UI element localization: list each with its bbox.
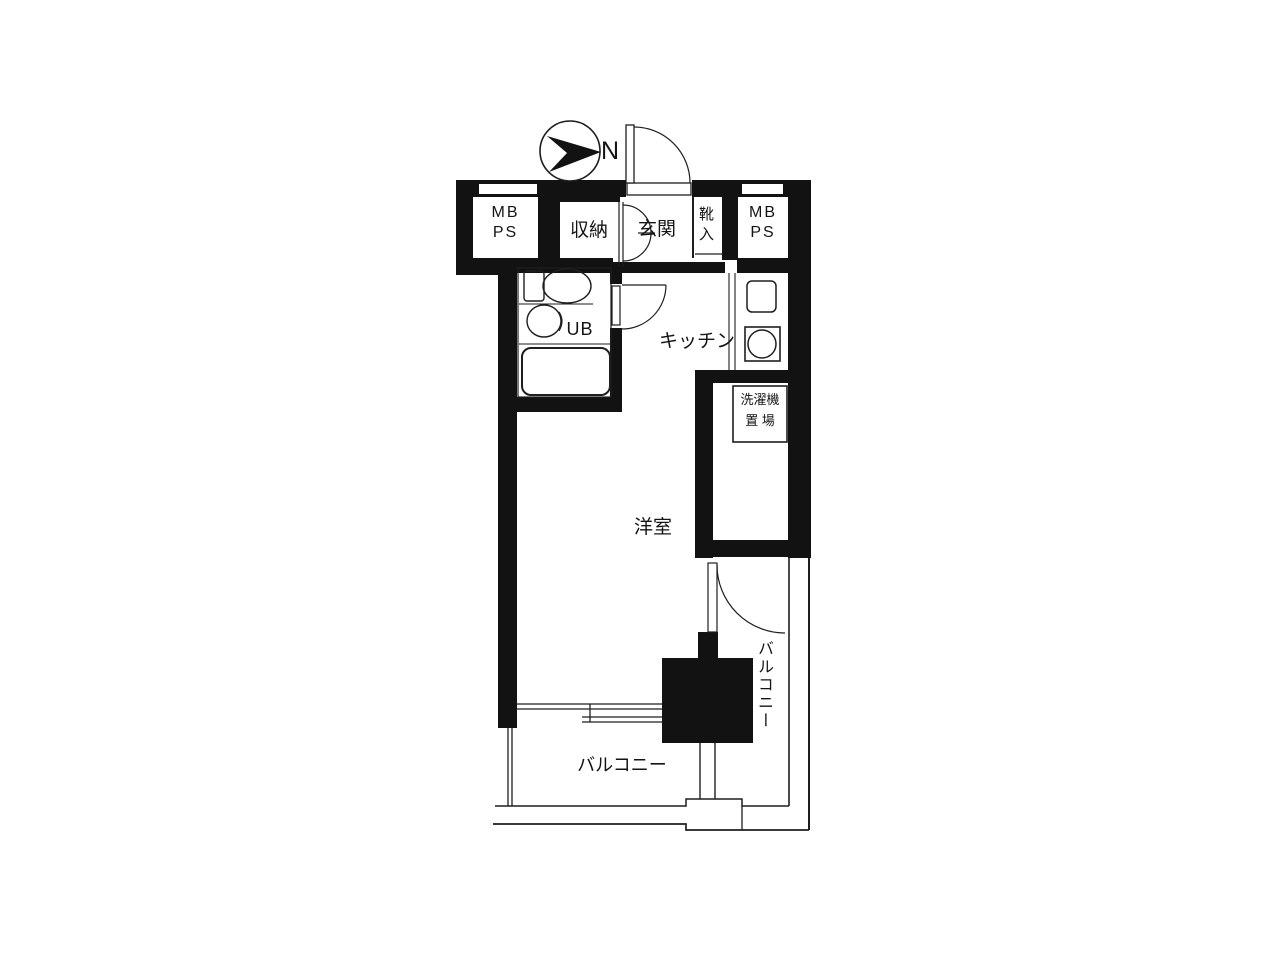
entry-threshold: [627, 183, 691, 195]
balcony-outer-boundary: [493, 824, 809, 830]
wall-closet-top: [560, 197, 620, 202]
balcony-door-swing-arc: [717, 565, 785, 633]
compass: [540, 121, 601, 181]
pillar-stem: [698, 632, 718, 658]
ub-door-swing-arc: [622, 285, 666, 329]
label-balcony-right: バルコニー: [755, 640, 771, 730]
wall-under-mbps-right: [737, 258, 790, 273]
wall-kitchen-bottom: [695, 370, 811, 383]
bathtub: [522, 348, 610, 395]
window-slot-right: [742, 184, 783, 194]
label-western-room: 洋室: [628, 516, 678, 540]
balcony-door-leaf: [708, 563, 717, 632]
sliding-window: [517, 704, 662, 722]
pillar: [662, 658, 753, 743]
floor-plan: MB PS 収納 玄関 靴入 MB PS UB キッチン 洗濯機 置 場 洋室 …: [0, 0, 1280, 953]
wall-washer-left: [695, 383, 713, 558]
wall-shoe-mbps-divider: [722, 197, 738, 260]
label-kitchen: キッチン: [649, 330, 745, 354]
label-entrance: 玄関: [624, 218, 690, 242]
toilet-bowl: [543, 269, 591, 303]
wall-mbps-closet-divider: [538, 197, 560, 262]
wall-balcony-top: [697, 540, 808, 557]
entry-door-swing-arc: [634, 127, 690, 183]
wall-under-entrance: [613, 262, 725, 273]
label-washer-space: 洗濯機 置 場: [733, 390, 787, 432]
stove-burner: [748, 330, 776, 358]
label-shoe-cabinet: 靴入: [698, 206, 713, 246]
label-mb-ps-right: MB PS: [738, 203, 788, 243]
label-compass-north: N: [601, 136, 619, 167]
label-balcony-bottom: バルコニー: [570, 754, 674, 777]
ub-door-leaf: [612, 286, 620, 325]
wall-left-inner: [498, 265, 517, 728]
floor-plan-drawing: [0, 0, 1280, 953]
wall-right-outer: [788, 180, 811, 558]
wall-ub-bottom: [498, 397, 622, 412]
bathroom-sink: [527, 305, 561, 337]
window-slot-left: [479, 184, 537, 194]
label-unit-bath: UB: [563, 318, 597, 341]
label-mb-ps-left: MB PS: [473, 203, 538, 243]
kitchen-fixtures: [729, 273, 780, 370]
ub-door: [612, 285, 666, 329]
label-closet: 収納: [558, 219, 620, 243]
toilet-tank: [524, 271, 544, 301]
stove-frame: [745, 327, 780, 361]
balcony-inner-boundary: [495, 799, 789, 806]
entry-door: [626, 125, 691, 195]
wall-ub-right-upper: [610, 273, 622, 284]
kitchen-sink: [747, 281, 776, 312]
entry-door-leaf: [626, 125, 634, 183]
balcony-door: [708, 563, 785, 633]
